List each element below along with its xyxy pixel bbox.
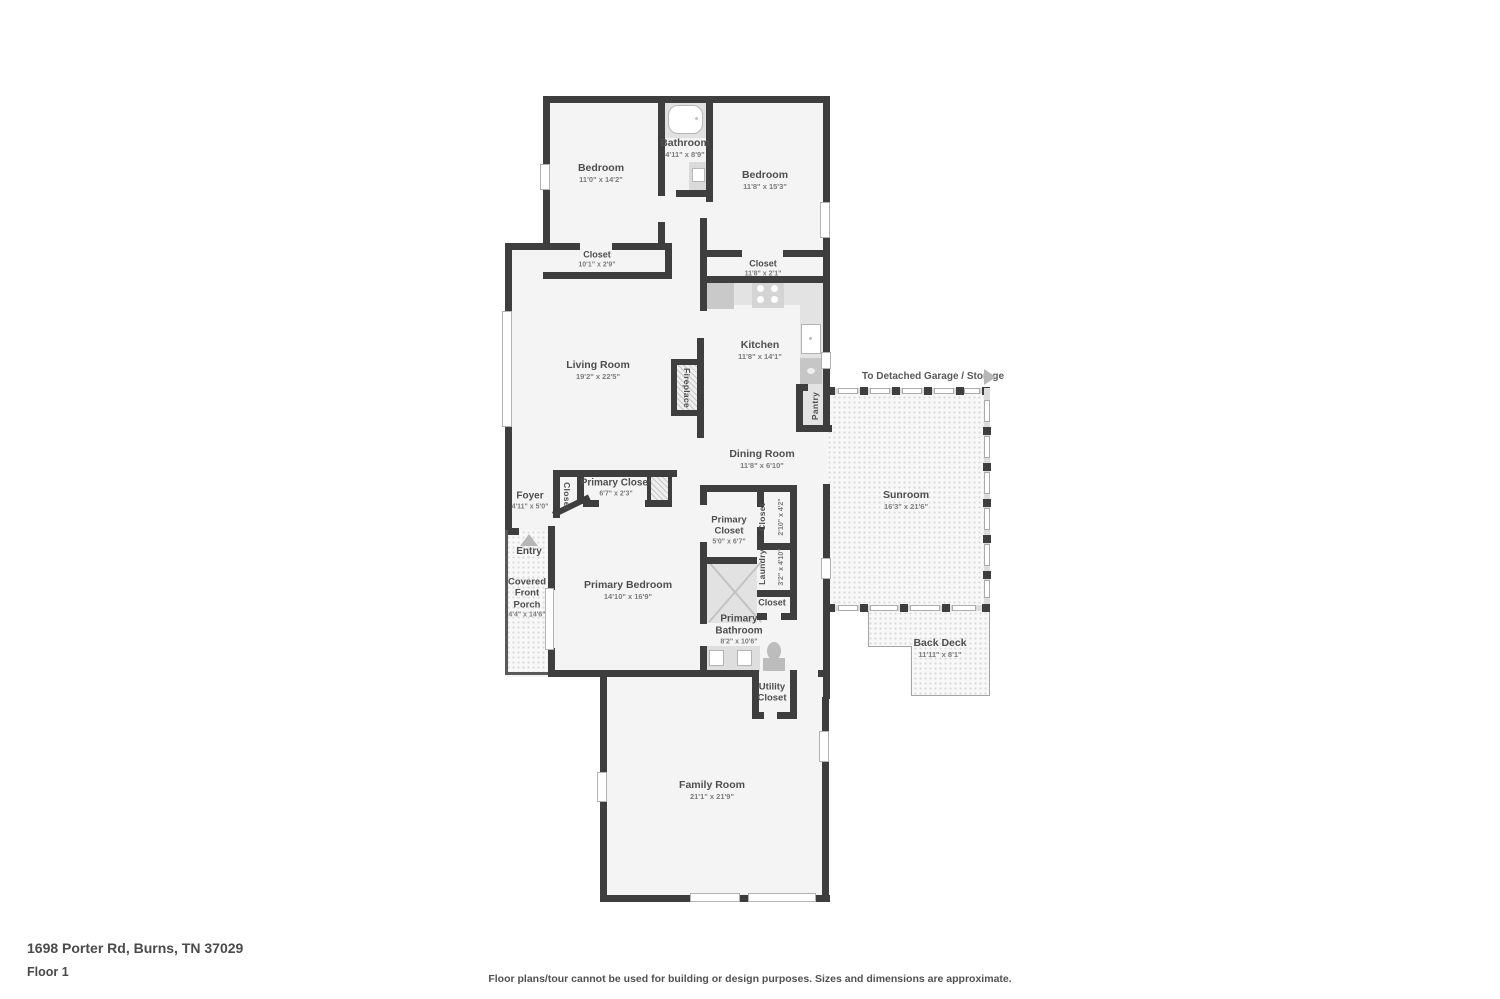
window	[984, 508, 990, 530]
window	[984, 436, 990, 458]
stove-burner	[757, 296, 764, 303]
room-label-pantry: Pantry	[805, 392, 823, 420]
disclaimer-text: Floor plans/tour cannot be used for buil…	[488, 973, 1011, 985]
wall	[700, 281, 707, 311]
wall	[822, 761, 829, 902]
post	[900, 604, 908, 612]
window	[952, 605, 976, 611]
window	[821, 352, 831, 369]
room-label-closet-bedroom-right: Closet 11'8" x 2'1"	[745, 258, 782, 277]
room-label-closet-bedroom-left: Closet 10'1" x 2'9"	[578, 249, 615, 268]
wall	[697, 338, 704, 438]
window	[984, 544, 990, 566]
room-label-sunroom: Sunroom 16'3" x 21'6"	[883, 489, 929, 511]
window	[502, 311, 512, 427]
refrigerator	[704, 283, 734, 309]
wall	[600, 895, 692, 902]
entry-arrow-up-icon	[520, 534, 538, 546]
room-label-dining-room: Dining Room 11'8" x 6'10"	[729, 448, 794, 470]
post	[924, 387, 932, 395]
stove-burner	[771, 285, 778, 292]
wall	[700, 542, 707, 624]
window	[597, 772, 607, 802]
wall	[543, 272, 672, 279]
wall	[543, 96, 830, 103]
post	[860, 387, 868, 395]
window	[934, 388, 954, 394]
wall	[700, 557, 757, 564]
dishwasher-door	[807, 368, 815, 374]
room-label-closet-foyer: Closet	[559, 482, 577, 510]
post	[956, 387, 964, 395]
wall	[600, 800, 607, 902]
window	[984, 400, 990, 422]
post	[983, 427, 991, 435]
wall	[548, 670, 759, 677]
wall	[543, 96, 550, 166]
stove-burner	[757, 285, 764, 292]
wall	[796, 425, 832, 432]
room-label-family-room: Family Room 21'1" x 21'9"	[679, 779, 745, 801]
porch-edge	[505, 672, 551, 675]
room-label-foyer: Foyer 4'11" x 5'0"	[512, 491, 549, 512]
window	[821, 558, 831, 579]
window	[984, 472, 990, 494]
post	[860, 604, 868, 612]
window	[838, 388, 858, 394]
bathtub	[668, 105, 703, 134]
kitchen-sink-drain	[809, 337, 812, 340]
window	[910, 605, 940, 611]
deck-edge	[989, 611, 990, 696]
wall	[543, 188, 550, 250]
room-label-living-room: Living Room 19'2" x 22'5"	[566, 359, 630, 381]
wall	[505, 243, 512, 313]
wall	[553, 470, 677, 477]
room-label-back-deck: Back Deck 11'11" x 8'1"	[913, 637, 966, 659]
wall	[818, 670, 830, 677]
wall	[645, 500, 672, 507]
wall	[822, 697, 829, 733]
room-label-primary-closet: Primary Closet 5'0" x 6'7"	[703, 514, 755, 545]
room-label-fireplace: Fireplace	[679, 368, 697, 408]
window	[819, 731, 829, 762]
post	[827, 387, 835, 395]
post	[982, 604, 990, 612]
deck-edge	[911, 646, 912, 696]
wall	[823, 96, 830, 204]
garage-arrow-right-icon	[984, 369, 996, 385]
post	[983, 499, 991, 507]
wall	[781, 613, 797, 620]
room-label-primary-closet-hall: Primary Closet 6'7" x 2'3"	[571, 478, 661, 499]
stove-burner	[771, 296, 778, 303]
room-label-utility-closet: Utility Closet	[752, 682, 792, 705]
room-label-bathroom: Bathroom 4'11" x 8'9"	[660, 137, 710, 159]
room-label-closet-hall: Closet 2'10" x 4'2"	[752, 498, 788, 535]
room-label-primary-bedroom: Primary Bedroom 14'10" x 16'9"	[584, 579, 672, 601]
post	[983, 463, 991, 471]
address-text: 1698 Porter Rd, Burns, TN 37029	[27, 940, 243, 956]
room-label-closet-bath: Closet	[758, 598, 786, 609]
wall	[700, 485, 797, 492]
wall	[505, 425, 512, 530]
window	[540, 164, 550, 190]
room-label-kitchen: Kitchen 11'8" x 14'1"	[738, 339, 782, 361]
wall	[505, 243, 580, 250]
window	[870, 388, 890, 394]
post	[983, 535, 991, 543]
wall	[790, 485, 797, 617]
floor-label: Floor 1	[27, 965, 69, 979]
wall	[783, 250, 830, 257]
window	[984, 580, 990, 598]
deck-edge	[911, 695, 990, 696]
post	[827, 604, 835, 612]
deck-edge	[868, 646, 911, 647]
window	[690, 893, 740, 902]
window	[870, 605, 898, 611]
wall	[823, 578, 830, 699]
bath-sink	[737, 650, 752, 666]
wall	[823, 276, 830, 354]
wall	[600, 670, 607, 774]
wall	[777, 712, 797, 719]
wall	[823, 368, 830, 426]
bath-sink	[709, 650, 724, 666]
wall	[700, 250, 742, 257]
wall	[612, 243, 672, 250]
deck-edge	[868, 611, 869, 647]
entry-label: Entry	[516, 546, 542, 558]
room-label-covered-front-porch: Covered Front Porch 4'4" x 14'6"	[504, 577, 550, 620]
wall	[752, 712, 764, 719]
wall	[676, 190, 711, 197]
floor-plan-page: Bedroom 11'0" x 14'2" Bathroom 4'11" x 8…	[0, 0, 1500, 999]
room-label-bedroom-left: Bedroom 11'0" x 14'2"	[578, 162, 624, 184]
bathtub-drain	[695, 117, 698, 120]
room-label-bedroom-right: Bedroom 11'8" x 15'3"	[742, 169, 788, 191]
room-label-primary-bathroom: Primary Bathroom 8'2" x 10'6"	[706, 614, 772, 647]
post	[983, 571, 991, 579]
window	[964, 388, 980, 394]
window	[820, 202, 830, 238]
window	[902, 388, 922, 394]
garage-note-label: To Detached Garage / Storage	[862, 371, 1004, 382]
wall	[757, 590, 797, 597]
window	[748, 893, 816, 902]
room-label-laundry: Laundry 3'2" x 4'10"	[752, 548, 788, 585]
post	[892, 387, 900, 395]
post	[942, 604, 950, 612]
wall	[823, 484, 830, 560]
wall	[700, 218, 707, 280]
bathroom-sink	[692, 168, 705, 182]
wall	[700, 485, 707, 505]
window	[838, 605, 858, 611]
